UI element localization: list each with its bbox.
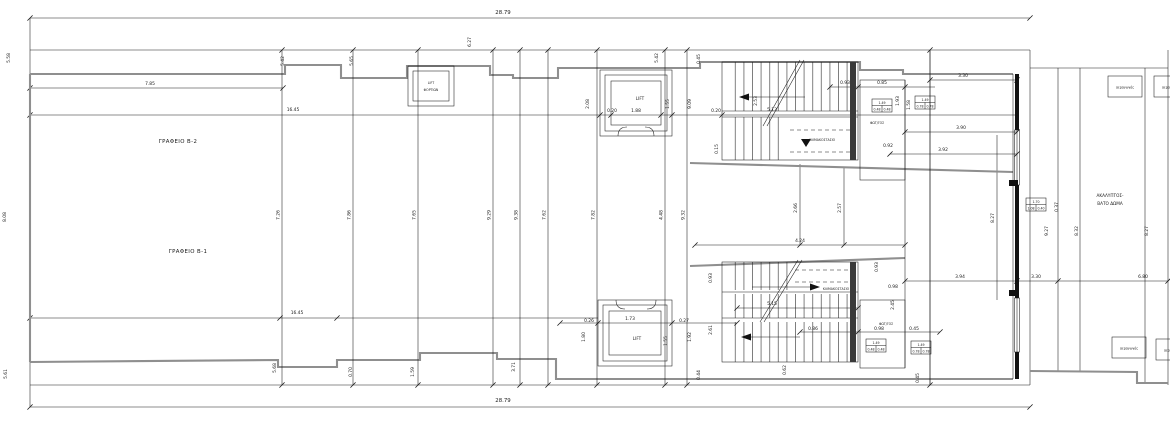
dim-label: 2.45	[890, 300, 896, 310]
tag-right-value: 0.78	[926, 105, 933, 109]
dim-label: 7.85	[145, 81, 155, 87]
grid-dim-label: 4.48	[659, 210, 665, 220]
wall-pier	[1009, 290, 1018, 296]
tag-top-value: 1.49	[921, 98, 928, 102]
dim-label: 3.71	[511, 362, 517, 372]
dim-label: 8.27	[1144, 226, 1150, 236]
wall-pier	[1009, 180, 1018, 186]
dim-label: 0.27	[679, 318, 689, 324]
dim-label: 9.27	[1044, 226, 1050, 236]
dim-label: 1.88	[631, 108, 641, 114]
grid-dim-label: 7.26	[276, 210, 282, 220]
dim-label: 0.93	[840, 80, 850, 86]
dim-label: 28.79	[495, 398, 511, 404]
dim-label: 3.90	[956, 125, 966, 131]
lightwell-bottom: ΦΩΤ/ΓΟΣ	[860, 300, 905, 368]
floor-plan-canvas: LIFT LIFT LIFT ΦΟΡΤΙΩΝ ΦΩΤ/ΓΟΣ ΦΩΤ/ΓΟΣ Γ…	[0, 0, 1170, 432]
lift-bottom: LIFT	[598, 300, 672, 366]
dim-label: 8.32	[1074, 226, 1080, 236]
grid-dim-label: 7.62	[542, 210, 548, 220]
dim-label: 1.73	[625, 316, 635, 322]
grid-dim-label: 7.82	[591, 210, 597, 220]
dim-label: 0.45	[909, 326, 919, 332]
tag-left-value: 0.78	[916, 105, 923, 109]
dim-label: 5.58	[6, 53, 12, 63]
dim-label: 1.93	[895, 96, 901, 106]
dim-labels-layer: 28.7928.797.8516.4516.455.585.425.656.27…	[2, 10, 1150, 404]
dim-label: 1.80	[581, 332, 587, 342]
dim-label: 5.15	[767, 301, 777, 307]
dim-label: 0.26	[584, 318, 594, 324]
dim-label: 2.53	[753, 96, 759, 106]
dim-label: 5.42	[280, 56, 286, 66]
dim-label: 3.94	[955, 274, 965, 280]
tag-top-value: 1.49	[917, 343, 924, 347]
floor-plan-drawing: LIFT LIFT LIFT ΦΟΡΤΙΩΝ ΦΩΤ/ΓΟΣ ΦΩΤ/ΓΟΣ Γ…	[0, 0, 1170, 432]
freight-lift-label-2: ΦΟΡΤΙΩΝ	[424, 88, 439, 92]
dim-label: 0.44	[696, 370, 702, 380]
freight-lift-label-1: LIFT	[428, 81, 434, 85]
dim-label: 16.45	[287, 107, 300, 113]
stair-steps	[734, 322, 856, 362]
air-duct-box: αεραγωγός	[1154, 76, 1170, 97]
air-duct-label: αεραγωγός	[1162, 86, 1170, 90]
dim-label: 8.27	[990, 213, 996, 223]
dim-label: 9.09	[687, 99, 693, 109]
dim-label: 0.85	[877, 80, 887, 86]
lightwell-label: ΦΩΤ/ΓΟΣ	[870, 121, 884, 125]
tag-left-value: 0.78	[912, 350, 919, 354]
dim-label: 0.70	[348, 367, 354, 377]
dim-label: 0.93	[708, 273, 714, 283]
air-duct-box: αεραγωγός	[1112, 337, 1146, 358]
air-duct-label: αεραγωγός	[1120, 347, 1138, 351]
dim-label: 1.58	[906, 100, 912, 110]
dim-label: 6.27	[467, 37, 473, 47]
building-outline	[30, 62, 1013, 379]
dim-label: 6.80	[1138, 274, 1148, 280]
dim-label: 4.24	[795, 238, 805, 244]
lift-label: LIFT	[633, 336, 642, 341]
dim-label: 0.98	[874, 326, 884, 332]
dim-label: 3.30	[958, 73, 968, 79]
ducts-layer: αεραγωγόςαεραγωγόςαεραγωγόςαεραγωγός	[1108, 76, 1170, 360]
dim-label: 1.55	[665, 99, 671, 109]
roof-label-2: ΒΑΤΟ ΔΩΜΑ	[1097, 201, 1123, 206]
dim-label: 0.86	[808, 326, 818, 332]
dim-label: 5.68	[272, 363, 278, 373]
dimension-lines	[30, 18, 1168, 407]
window-tag: 1.701.080.40	[1026, 198, 1046, 211]
tag-top-value: 1.49	[872, 341, 879, 345]
dim-label: 28.79	[495, 10, 511, 16]
stair-core-wall	[850, 262, 856, 362]
dim-label: 5.61	[3, 369, 9, 379]
grid-dim-label: 7.65	[412, 210, 418, 220]
air-duct-box: αεραγωγός	[1108, 76, 1142, 97]
window-tag: 1.490.780.78	[915, 96, 935, 109]
dim-label: 0.20	[607, 108, 617, 114]
freight-lift: LIFT ΦΟΡΤΙΩΝ	[408, 66, 454, 106]
lift-top: LIFT	[600, 70, 672, 136]
stair-core-wall	[850, 62, 856, 160]
office-b2-label: ΓΡΑΦΕΙΟ Β-2	[159, 139, 198, 145]
dim-label: 0.37	[1054, 202, 1060, 212]
lightwell-label: ΦΩΤ/ΓΟΣ	[879, 322, 893, 326]
grid-dim-label: 9.38	[514, 210, 520, 220]
tag-left-value: 0.48	[867, 348, 874, 352]
staircase-bottom	[722, 260, 858, 362]
tag-left-value: 0.48	[873, 108, 880, 112]
tag-right-value: 0.48	[883, 108, 890, 112]
dim-label: 0.93	[874, 262, 880, 272]
air-duct-label: αεραγωγός	[1164, 349, 1170, 353]
dim-label: 16.45	[291, 310, 304, 316]
exterior-wall-right	[1009, 74, 1020, 379]
tag-right-value: 0.48	[877, 348, 884, 352]
staircase-top-label: ΚΛΙΜΑΚΟΣΤΑΣΙΟ	[809, 138, 836, 142]
dim-label: 2.08	[585, 99, 591, 109]
dim-label: 1.59	[410, 367, 416, 377]
roof-area	[1030, 50, 1168, 385]
dim-label: 1.92	[687, 332, 693, 342]
stair-steps	[734, 294, 856, 318]
grid-dim-label: 9.29	[487, 210, 493, 220]
dim-label: 0.20	[711, 108, 721, 114]
grid-dim-label: 7.86	[347, 210, 353, 220]
window-tag: 1.490.480.48	[866, 339, 886, 352]
dim-label: 0.45	[915, 373, 921, 383]
dim-label: 3.92	[938, 147, 948, 153]
air-duct-label: αεραγωγός	[1116, 86, 1134, 90]
tag-left-value: 1.08	[1027, 207, 1034, 211]
dim-label: 0.62	[782, 365, 788, 375]
dim-label: 0.15	[714, 144, 720, 154]
tag-top-value: 1.70	[1032, 200, 1039, 204]
tag-right-value: 0.78	[922, 350, 929, 354]
dim-label: 0.45	[696, 54, 702, 64]
grid-dim-label: 9.32	[681, 210, 687, 220]
lift-label: LIFT	[636, 96, 645, 101]
dim-label: 5.42	[654, 53, 660, 63]
office-b1-label: ΓΡΑΦΕΙΟ Β-1	[169, 249, 208, 255]
dim-label: 2.57	[837, 203, 843, 213]
window-tag: 1.490.780.78	[911, 341, 931, 354]
dim-label: 2.66	[793, 203, 799, 213]
staircase-bottom-label: ΚΛΙΜΑΚΟΣΤΑΣΙΟ	[823, 287, 850, 291]
lightwell-top: ΦΩΤ/ΓΟΣ	[860, 80, 905, 180]
dim-label: 5.13	[767, 107, 777, 113]
window-tag: 1.490.480.48	[872, 99, 892, 112]
dim-label: 3.30	[1031, 274, 1041, 280]
staircase-top	[722, 60, 858, 160]
dim-label: 8.08	[2, 212, 8, 222]
dim-label: 1.55	[663, 336, 669, 346]
dim-label: 0.92	[883, 143, 893, 149]
dim-label: 5.65	[349, 56, 355, 66]
roof-label-1: ΑΚΑΛΥΠΤΟΣ-	[1096, 193, 1124, 198]
stair-direction-arrow	[810, 284, 820, 291]
dim-label: 0.98	[888, 284, 898, 290]
tag-right-value: 0.40	[1037, 207, 1044, 211]
stair-steps	[734, 117, 786, 160]
stair-steps	[734, 262, 790, 290]
tag-top-value: 1.49	[878, 101, 885, 105]
dim-label: 2.61	[708, 325, 714, 335]
